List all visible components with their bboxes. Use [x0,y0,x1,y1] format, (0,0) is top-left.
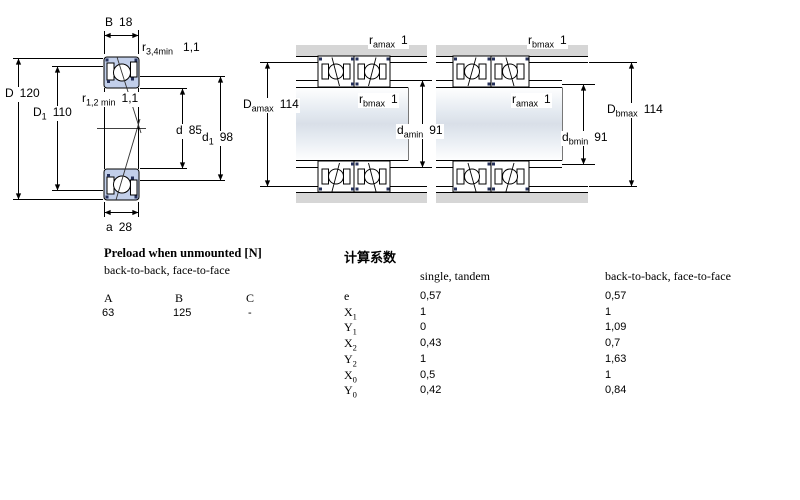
dim-label-D1: D1110 [32,106,73,121]
dim-label-r34min: r3,4min1,1 [141,41,201,56]
factor-symbol: Y1 [344,320,357,336]
factor-single-value: 1 [420,353,426,365]
factor-single-value: 1 [420,306,426,318]
factors-col-back-to-back: back-to-back, face-to-face [605,269,731,284]
factor-btb-value: 0,57 [605,290,626,302]
dim-label-d1: d198 [201,131,234,146]
factor-row-Y2: Y2 1 1,63 [344,352,774,368]
preload-value-C: - [248,307,252,319]
dim-label-d: d85 [175,124,203,139]
dim-label-Dbmax: Dbmax114 [606,103,664,118]
factor-row-X0: X0 0,5 1 [344,368,774,384]
preload-subtitle: back-to-back, face-to-face [104,263,230,278]
factor-symbol: X1 [344,305,357,321]
factor-symbol: Y0 [344,383,357,399]
factor-single-value: 0,43 [420,337,441,349]
factor-single-value: 0,57 [420,290,441,302]
dim-label-ramax-top: ramax1 [368,34,409,49]
factors-title: 计算系数 [344,247,396,266]
preload-col-B: B [175,291,183,306]
factor-row-e: e 0,57 0,57 [344,289,774,305]
housing-band [436,192,588,203]
datasheet-page: B18 r3,4min1,1 D120 D1110 r1,2 min1,1 d8… [0,0,800,500]
dim-label-a: a28 [105,221,133,236]
preload-value-A: 63 [102,307,114,319]
preload-col-C: C [246,291,254,306]
factor-btb-value: 1,63 [605,353,626,365]
dim-label-ramax-mid: ramax1 [511,93,552,108]
factor-symbol: X0 [344,368,357,384]
factor-row-Y0: Y0 0,42 0,84 [344,383,774,399]
factor-symbol: X2 [344,336,357,352]
dim-label-D: D120 [4,87,41,102]
factor-single-value: 0 [420,321,426,333]
preload-value-B: 125 [173,307,191,319]
factor-single-value: 0,42 [420,384,441,396]
dim-label-Damax: Damax114 [242,98,300,113]
factor-row-X1: X1 1 1 [344,305,774,321]
factor-btb-value: 1 [605,369,611,381]
preload-title: Preload when unmounted [N] [104,246,262,261]
factor-btb-value: 1,09 [605,321,626,333]
dim-label-dbmin: dbmin91 [561,131,609,146]
housing-band [296,192,427,203]
dim-label-damin: damin91 [396,124,444,139]
dim-label-rbmax-mid: rbmax1 [358,93,399,108]
factor-btb-value: 1 [605,306,611,318]
factor-symbol: Y2 [344,352,357,368]
factor-btb-value: 0,84 [605,384,626,396]
preload-col-A: A [104,291,113,306]
factor-symbol: e [344,289,349,305]
factor-btb-value: 0,7 [605,337,620,349]
mounting-face-to-face [436,45,637,203]
factor-row-Y1: Y1 0 1,09 [344,320,774,336]
factors-col-single-tandem: single, tandem [420,269,490,284]
factor-row-X2: X2 0,43 0,7 [344,336,774,352]
dim-label-r12min: r1,2 min1,1 [81,92,139,107]
factor-single-value: 0,5 [420,369,435,381]
dim-label-rbmax-top: rbmax1 [527,34,568,49]
dim-label-B: B18 [104,16,133,31]
